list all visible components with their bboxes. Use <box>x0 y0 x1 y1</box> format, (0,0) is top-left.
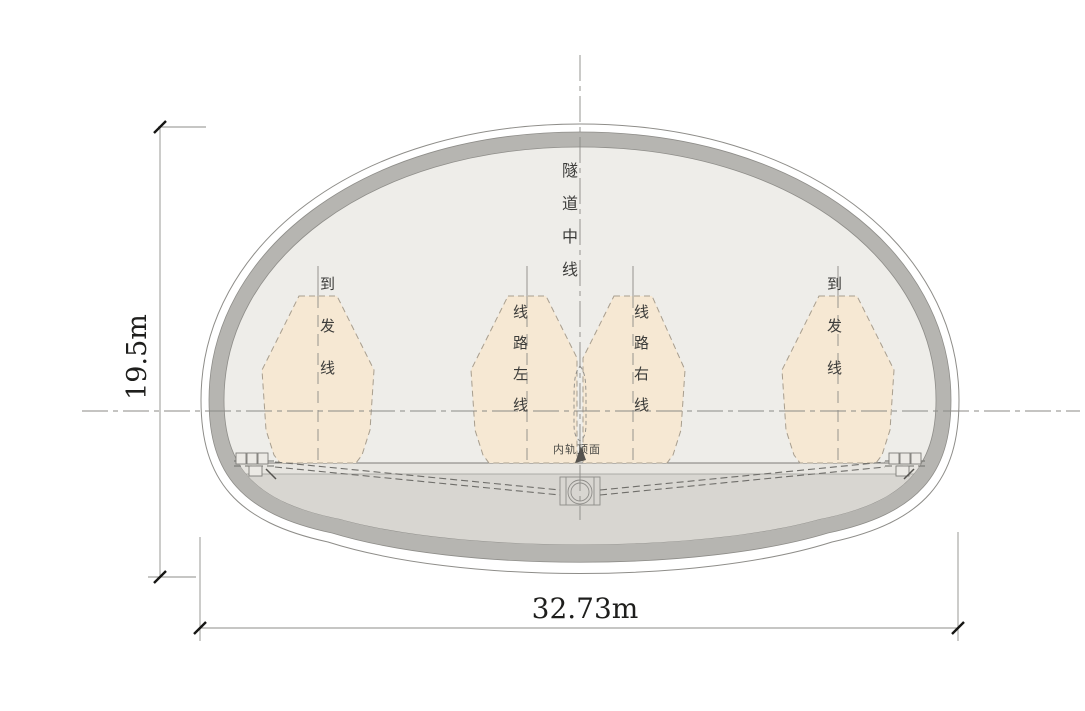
line-left-label: 线路左线 <box>512 304 527 428</box>
tunnel-height-dimension-text: 19.5m <box>122 297 152 417</box>
height-dimension <box>148 121 206 583</box>
tunnel-centerline-label: 隧道中线 <box>560 162 576 294</box>
arrival-departure-right-label: 到发线 <box>826 276 841 402</box>
tunnel-width-dimension-text: 32.73m <box>505 592 665 625</box>
rail-top-surface-label: 内轨顶面 <box>553 441 601 457</box>
floor-strip <box>200 463 940 474</box>
arrival-departure-left-label: 到发线 <box>319 276 334 402</box>
line-right-label: 线路右线 <box>633 304 648 428</box>
tunnel-cross-section-drawing: 隧道中线 到发线 线路左线 线路右线 到发线 内轨顶面 19.5m 32.73m <box>0 0 1085 711</box>
